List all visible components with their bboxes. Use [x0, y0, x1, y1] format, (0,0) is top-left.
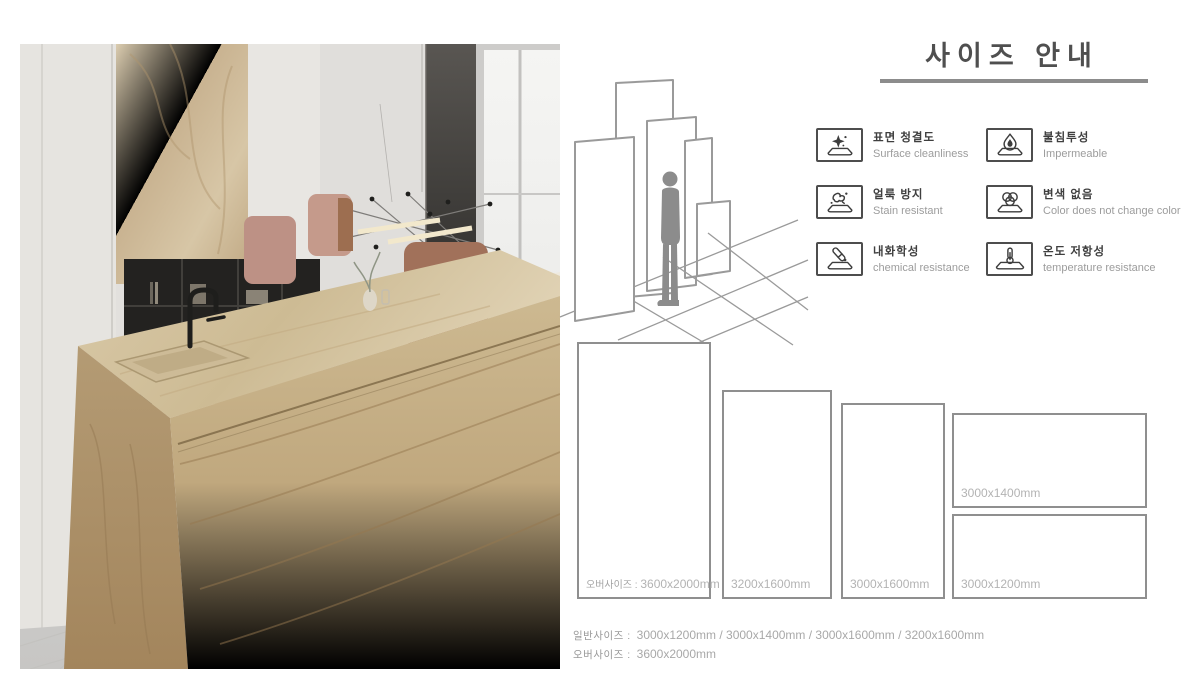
title-underline	[880, 79, 1148, 83]
kitchen-photo	[20, 44, 560, 669]
size-slab-label: 오버사이즈 : 3600x2000mm	[586, 576, 720, 591]
size-slab-3000x1200: 3000x1200mm	[952, 514, 1147, 599]
size-summary: 일반사이즈 :3000x1200mm / 3000x1400mm / 3000x…	[573, 628, 984, 666]
feature-label-ko: 얼룩 방지	[873, 186, 943, 202]
test-tube-icon	[816, 242, 863, 276]
size-guide-slide: 사이즈 안내	[0, 0, 1200, 686]
thermometer-icon	[986, 242, 1033, 276]
dining-chair	[308, 194, 353, 256]
feature-temperature-resistance: 온도 저항성 temperature resistance	[986, 242, 1156, 276]
feature-label-en: Impermeable	[1043, 148, 1107, 160]
water-drop-icon	[986, 128, 1033, 162]
size-slab-dimension: 3000x1600mm	[850, 577, 929, 591]
feature-no-discoloration: 변색 없음 Color does not change color	[986, 185, 1181, 219]
size-slab-label: 3200x1600mm	[731, 577, 810, 591]
feature-label-ko: 변색 없음	[1043, 186, 1181, 202]
size-slab-3600x2000: 오버사이즈 : 3600x2000mm	[577, 342, 711, 599]
feature-label-ko: 표면 청결도	[873, 129, 968, 145]
dining-chair	[244, 216, 296, 284]
size-slab-3000x1600: 3000x1600mm	[841, 403, 945, 599]
summary-value: 3000x1200mm / 3000x1400mm / 3000x1600mm …	[637, 628, 985, 642]
size-slab-dimension: 3600x2000mm	[640, 577, 719, 591]
kitchen-photo-art	[20, 44, 560, 669]
feature-stain-resistant: 얼룩 방지 Stain resistant	[816, 185, 943, 219]
slab-height-diagram	[558, 55, 810, 347]
size-slab-prefix: 오버사이즈 :	[586, 580, 640, 591]
size-slab-dimension: 3000x1200mm	[961, 577, 1040, 591]
feature-surface-cleanliness: 표면 청결도 Surface cleanliness	[816, 128, 968, 162]
feature-label-en: temperature resistance	[1043, 262, 1156, 274]
feature-label-ko: 온도 저항성	[1043, 243, 1156, 259]
size-slab-dimension: 3200x1600mm	[731, 577, 810, 591]
feature-label-ko: 내화학성	[873, 243, 970, 259]
feature-label-en: Surface cleanliness	[873, 148, 968, 160]
feature-label-ko: 불침투성	[1043, 129, 1107, 145]
feature-chemical-resistance: 내화학성 chemical resistance	[816, 242, 970, 276]
summary-value: 3600x2000mm	[637, 647, 716, 661]
feature-label-en: Stain resistant	[873, 205, 943, 217]
page-title: 사이즈 안내	[852, 34, 1172, 73]
feature-impermeable: 불침투성 Impermeable	[986, 128, 1107, 162]
diagram-slab	[575, 137, 634, 321]
size-slab-label: 3000x1200mm	[961, 577, 1040, 591]
size-slab-dimension: 3000x1400mm	[961, 486, 1040, 500]
feature-label-en: chemical resistance	[873, 262, 970, 274]
summary-label: 일반사이즈 :	[573, 630, 631, 642]
summary-line-oversize: 오버사이즈 :3600x2000mm	[573, 647, 984, 662]
size-slab-3000x1400: 3000x1400mm	[952, 413, 1147, 508]
color-wheel-icon	[986, 185, 1033, 219]
summary-line-standard: 일반사이즈 :3000x1200mm / 3000x1400mm / 3000x…	[573, 628, 984, 643]
feature-label-en: Color does not change color	[1043, 205, 1181, 217]
diagram-slab	[697, 201, 730, 276]
size-slab-3200x1600: 3200x1600mm	[722, 390, 832, 599]
size-slab-label: 3000x1600mm	[850, 577, 929, 591]
stain-splash-icon	[816, 185, 863, 219]
summary-label: 오버사이즈 :	[573, 649, 631, 661]
sparkle-surface-icon	[816, 128, 863, 162]
size-slab-label: 3000x1400mm	[961, 486, 1040, 500]
